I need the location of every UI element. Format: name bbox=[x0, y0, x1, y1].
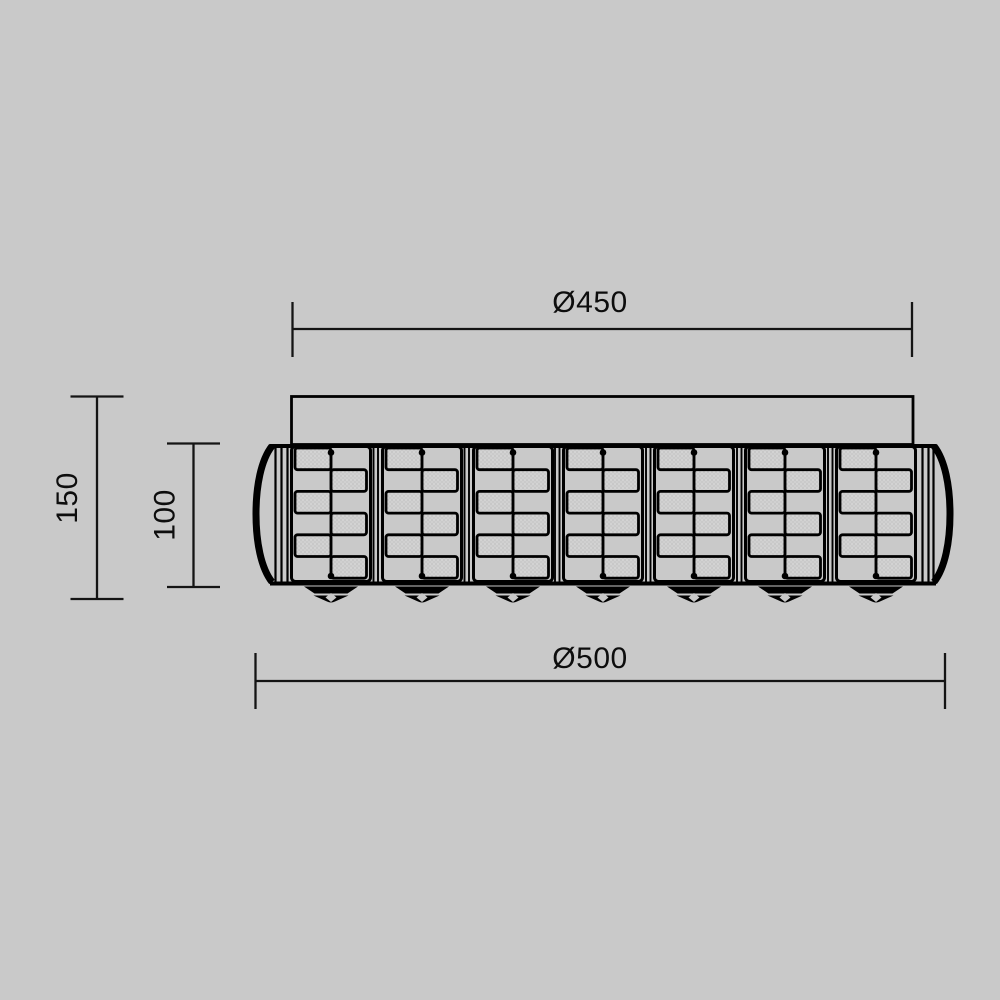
dimension-label-height-overall: 150 bbox=[51, 472, 84, 524]
ceiling-lamp-dimension-diagram: Ø450 150 100 bbox=[0, 0, 1000, 1000]
technical-drawing-page: Ø450 150 100 bbox=[0, 0, 1000, 1000]
dimension-label-diameter-bottom: Ø500 bbox=[552, 642, 627, 675]
dimension-label-height-shade: 100 bbox=[149, 489, 182, 541]
dimension-label-diameter-top: Ø450 bbox=[552, 286, 627, 319]
